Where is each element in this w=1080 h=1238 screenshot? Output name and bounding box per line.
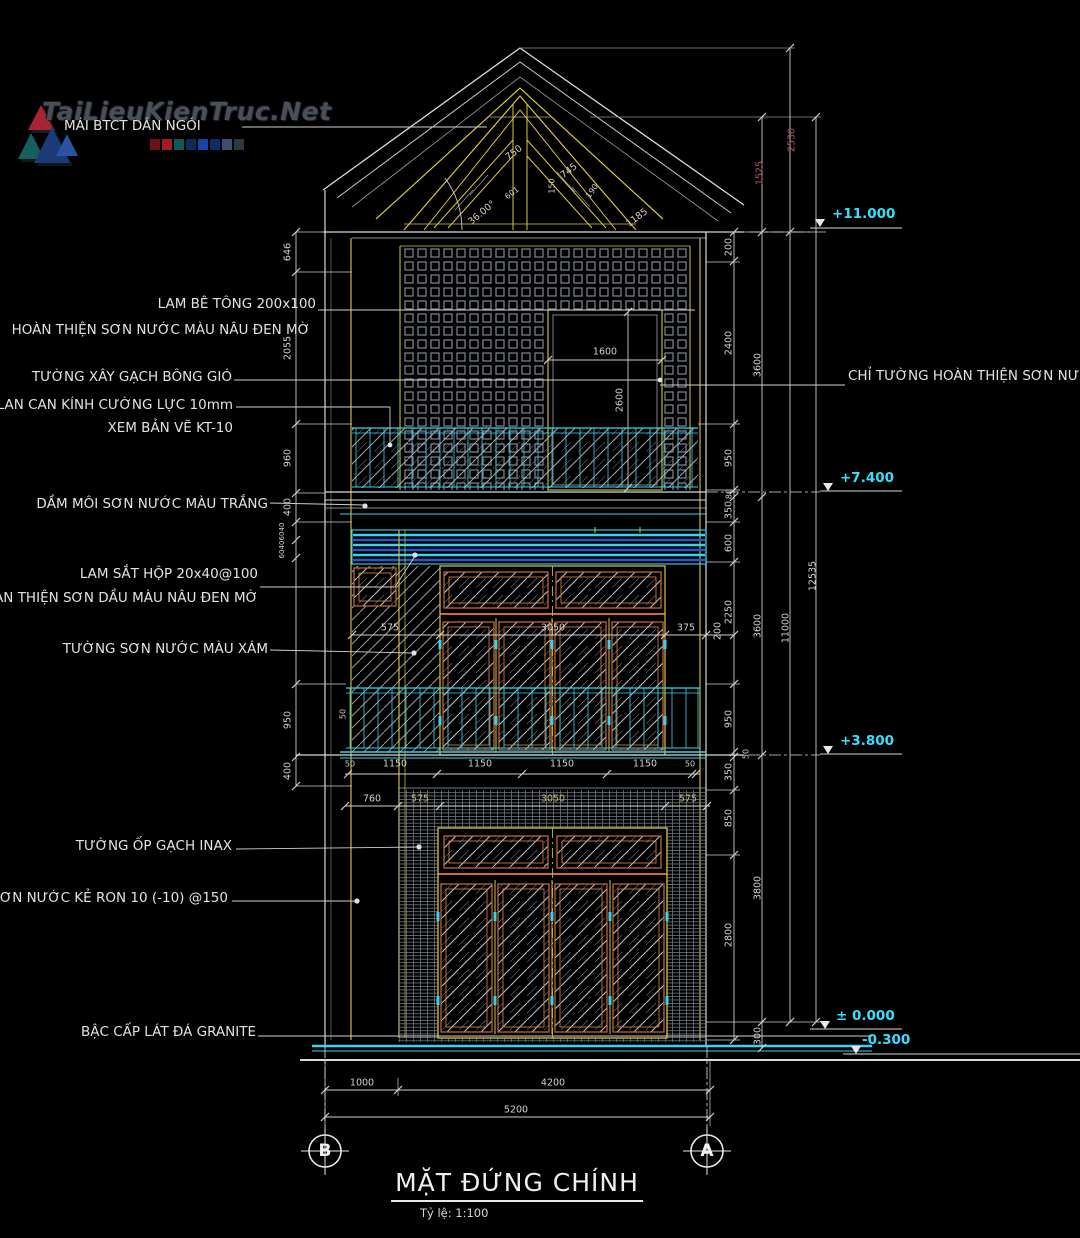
dim-label: 50	[345, 760, 355, 769]
callout-roof: MÁI BTCT DÁN NGÓI	[64, 118, 201, 134]
dim-label: 950	[283, 711, 294, 729]
dim-label: 4200	[541, 1078, 565, 1089]
dim-label: 2055	[283, 336, 294, 360]
dim-label: 5200	[504, 1105, 528, 1116]
callout-lam-be-tong-finish: HOÀN THIỆN SƠN NƯỚC MÀU NÂU ĐEN MỜ	[12, 322, 310, 338]
dim-label: 60	[278, 550, 286, 559]
dim-label: 40	[278, 541, 286, 550]
cad-elevation-drawing: TaiLieuKienTruc.Net MÁI BTCT DÁN NGÓI LA…	[0, 0, 1080, 1238]
callout-right-wall-finish: CHỈ TƯỜNG HOÀN THIỆN SƠN NƯ	[848, 368, 1079, 384]
callout-steel-louvre: LAM SẮT HỘP 20x40@100	[80, 566, 258, 582]
dim-label: 1150	[468, 759, 492, 770]
callout-lam-be-tong: LAM BÊ TÔNG 200x100	[158, 296, 316, 312]
dim-label: 80	[725, 489, 734, 499]
dim-label: 3800	[753, 876, 764, 900]
dim-label: 646	[283, 243, 294, 261]
level-top: +11.000	[832, 206, 895, 222]
callout-grey-paint-wall: TƯỜNG SƠN NƯỚC MÀU XÁM	[63, 641, 268, 657]
dim-label: 575	[411, 794, 429, 805]
drip-beam	[325, 492, 706, 514]
callout-granite-step: BẬC CẤP LÁT ĐÁ GRANITE	[81, 1024, 256, 1040]
dim-label: 3050	[541, 623, 565, 634]
dim-label: 2530	[787, 128, 798, 152]
dim-label: 1600	[593, 347, 617, 358]
dim-label: 400	[283, 498, 294, 516]
dim-label: 950	[724, 449, 735, 467]
level-base: -0.300	[862, 1032, 910, 1048]
level-second: +3.800	[840, 733, 894, 749]
dim-label: 1150	[383, 759, 407, 770]
dim-label: 850	[724, 809, 735, 827]
roof-linework	[323, 48, 821, 238]
drawing-title: MẶT ĐỨNG CHÍNH	[391, 1168, 643, 1202]
brand-pixel-squares	[150, 139, 244, 150]
callout-glass-railing: LAN CAN KÍNH CƯỜNG LỰC 10mm	[0, 397, 233, 413]
dim-label: 575	[679, 794, 697, 805]
callout-leaders	[232, 127, 845, 904]
level-flag-icon	[820, 1021, 830, 1029]
dim-label: 40	[278, 523, 286, 532]
dim-label: 600	[724, 534, 735, 552]
callout-breeze-block-wall: TƯỜNG XÂY GẠCH BÔNG GIÓ	[32, 369, 232, 385]
dim-label: 2600	[615, 388, 626, 412]
dim-label: 575	[381, 623, 399, 634]
floor2-door	[439, 566, 667, 755]
dim-label: 50	[339, 709, 348, 719]
dim-label: 200	[713, 622, 724, 640]
callout-inax-tile-wall: TƯỜNG ỐP GẠCH INAX	[76, 838, 232, 854]
dim-label: 3050	[541, 794, 565, 805]
dim-label: 1525	[755, 161, 766, 185]
dim-label: 400	[283, 762, 294, 780]
dim-label: 50	[742, 749, 751, 759]
dim-label: 150	[548, 178, 557, 193]
callout-glass-railing-ref: XEM BẢN VẼ KT-10	[107, 420, 233, 436]
dim-label: 350	[724, 763, 735, 781]
level-ground: ± 0.000	[836, 1008, 895, 1024]
ground-door	[437, 828, 669, 1038]
dim-label: 3600	[753, 614, 764, 638]
dim-label: 2400	[724, 331, 735, 355]
drawing-linework	[0, 0, 1080, 1238]
dim-label: 12535	[808, 561, 819, 591]
dim-label: 950	[724, 710, 735, 728]
dim-label: 1150	[633, 759, 657, 770]
callout-drip-beam: DẦM MÔI SƠN NƯỚC MÀU TRẮNG	[36, 496, 268, 512]
dim-label: 300	[753, 1027, 764, 1045]
level-flag-icon	[823, 483, 833, 491]
axis-bubble-a: A	[700, 1141, 713, 1161]
axis-bubble-b: B	[319, 1141, 332, 1161]
glass-railing-top	[352, 428, 698, 488]
callout-groove-paint: SƠN NƯỚC KẺ RON 10 (-10) @150	[0, 890, 228, 906]
dim-label: 200	[724, 238, 735, 256]
dim-label: 1000	[350, 1078, 374, 1089]
drawing-scale: Tỷ lệ: 1:100	[420, 1206, 488, 1220]
dim-label: 350	[724, 501, 735, 519]
level-flag-icon	[823, 746, 833, 754]
level-flag-icon	[851, 1046, 861, 1054]
dim-label: 960	[283, 449, 294, 467]
callout-steel-louvre-finish: ÀN THIỆN SƠN DẦU MÀU NÂU ĐEN MỜ	[0, 590, 258, 606]
dim-label: 11000	[781, 613, 792, 643]
dim-label: 60	[278, 532, 286, 541]
dim-label: 760	[363, 794, 381, 805]
dim-label: 50	[685, 760, 695, 769]
dim-label: 3600	[753, 353, 764, 377]
level-flag-icon	[815, 219, 825, 227]
dim-label: 2800	[724, 923, 735, 947]
dim-label: 2250	[724, 600, 735, 624]
dim-label: 375	[677, 623, 695, 634]
level-third: +7.400	[840, 470, 894, 486]
dim-label: 1150	[550, 759, 574, 770]
